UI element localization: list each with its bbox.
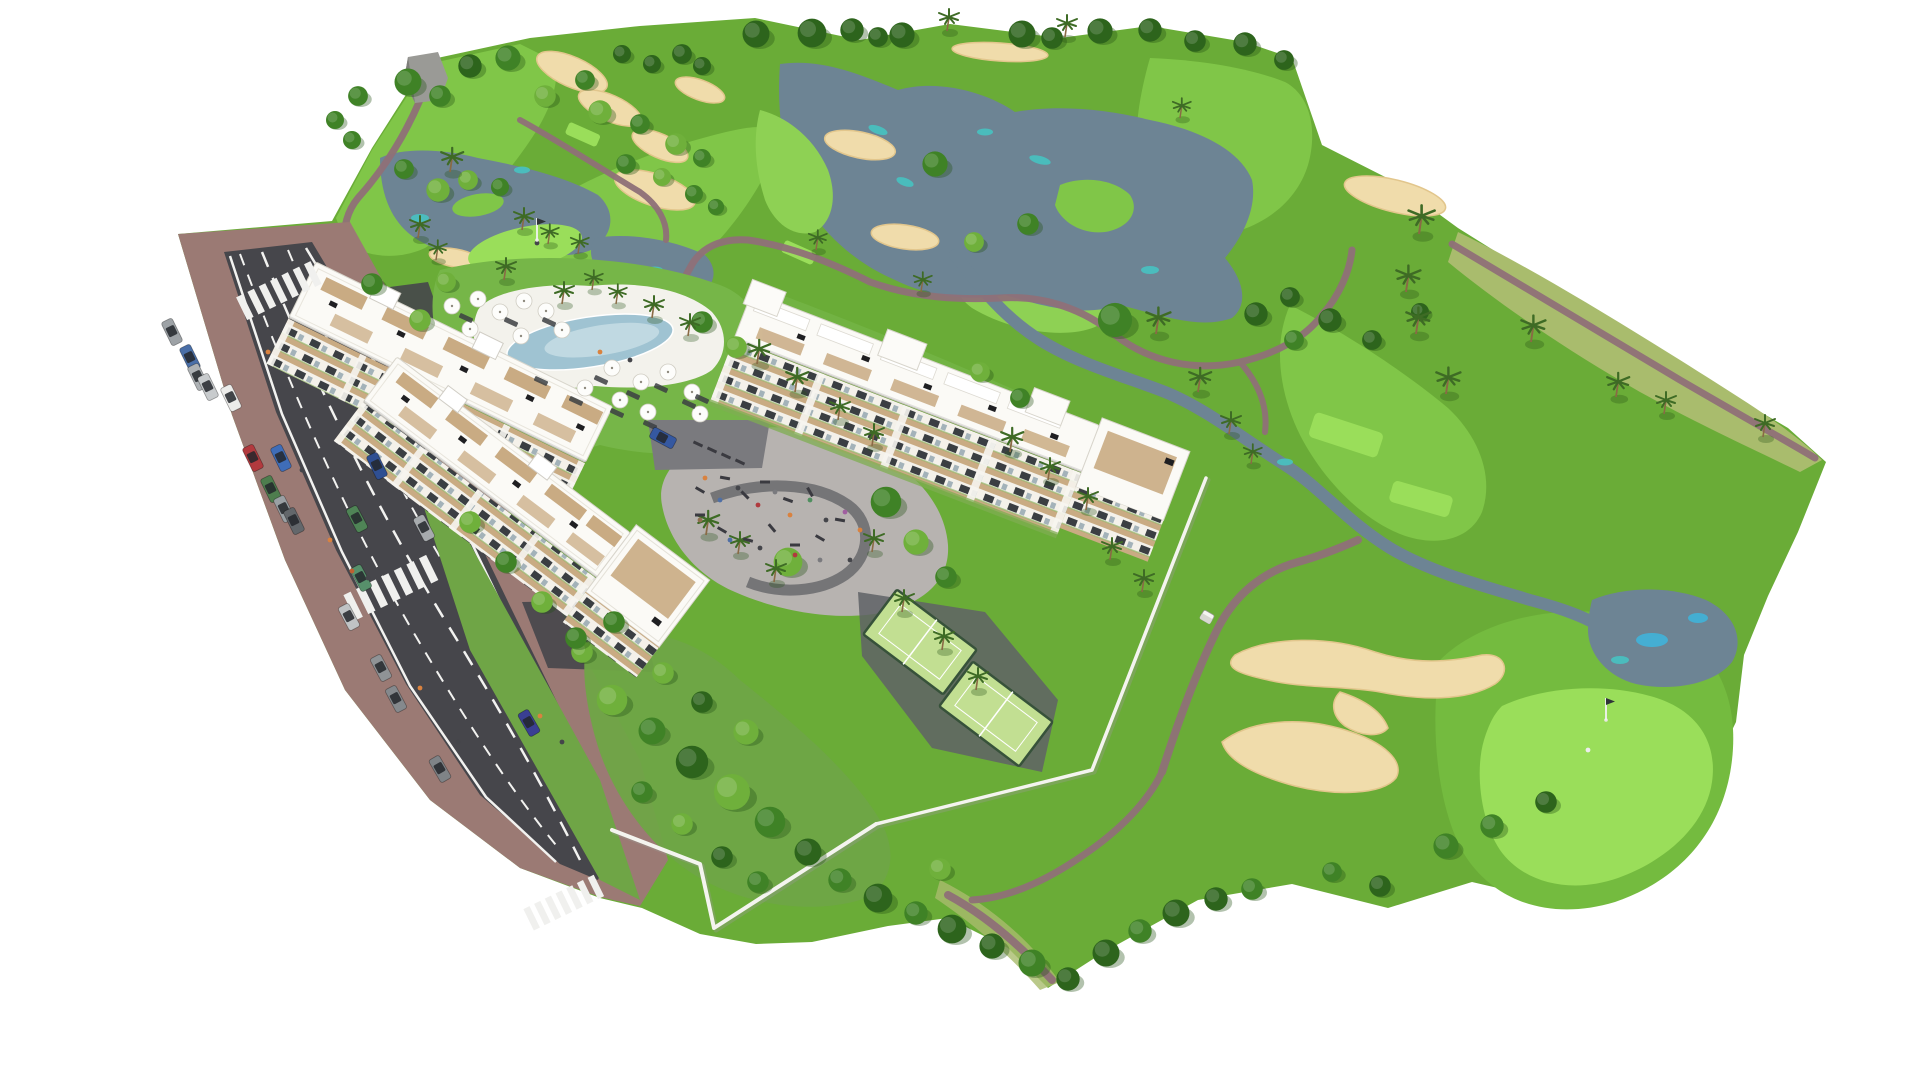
person-icon <box>560 740 565 745</box>
person-icon <box>848 558 853 563</box>
play-equipment-icon <box>760 481 770 484</box>
person-icon <box>350 569 355 574</box>
umbrella-icon <box>554 322 570 338</box>
person-icon <box>598 350 603 355</box>
umbrella-icon <box>604 360 620 376</box>
umbrella-icon <box>470 291 486 307</box>
person-icon <box>824 518 829 523</box>
umbrella-icon <box>513 328 529 344</box>
play-equipment-icon <box>790 544 800 547</box>
person-icon <box>728 538 733 543</box>
person-icon <box>266 350 271 355</box>
play-equipment-icon <box>695 514 705 517</box>
person-icon <box>456 740 461 745</box>
umbrella-icon <box>444 298 460 314</box>
umbrella-icon <box>577 380 593 396</box>
umbrella-icon <box>633 374 649 390</box>
umbrella-icon <box>462 321 478 337</box>
person-icon <box>418 686 423 691</box>
rendering-canvas <box>0 0 1920 1079</box>
person-icon <box>300 468 305 473</box>
person-icon <box>858 528 863 533</box>
person-icon <box>756 503 761 508</box>
umbrella-icon <box>640 404 656 420</box>
person-icon <box>703 476 708 481</box>
person-icon <box>538 714 543 719</box>
person-icon <box>773 490 778 495</box>
person-icon <box>843 510 848 515</box>
person-icon <box>808 498 813 503</box>
umbrella-icon <box>660 364 676 380</box>
person-icon <box>758 546 763 551</box>
person-icon <box>628 358 633 363</box>
umbrella-icon <box>538 303 554 319</box>
person-icon <box>718 498 723 503</box>
person-icon <box>736 486 741 491</box>
person-icon <box>366 576 371 581</box>
person-icon <box>1586 748 1591 753</box>
umbrella-icon <box>612 392 628 408</box>
person-icon <box>328 538 333 543</box>
person-icon <box>788 513 793 518</box>
person-icon <box>793 553 798 558</box>
umbrella-icon <box>516 293 532 309</box>
person-icon <box>698 518 703 523</box>
person-icon <box>818 558 823 563</box>
